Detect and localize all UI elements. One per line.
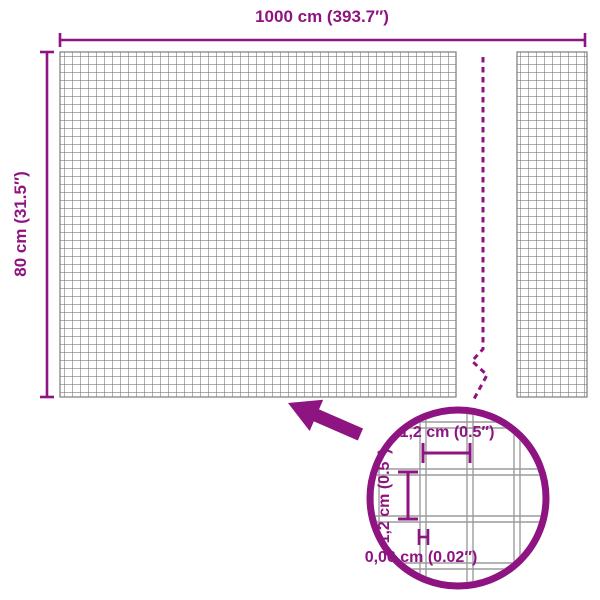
cell-width-label: 1,2 cm (0.5″) bbox=[400, 424, 495, 441]
width-label: 1000 cm (393.7″) bbox=[255, 7, 389, 26]
cell-height-label: 1,2 cm (0.5″) bbox=[376, 449, 393, 544]
mesh-panel-left bbox=[60, 52, 456, 397]
mesh-panel-right bbox=[517, 52, 587, 397]
wire-thickness-label: 0,06 cm (0.02″) bbox=[365, 549, 478, 566]
height-label: 80 cm (31.5″) bbox=[11, 171, 30, 276]
mesh-grid bbox=[60, 52, 456, 397]
mesh-product-diagram: 1000 cm (393.7″) 80 cm (31.5″) bbox=[0, 0, 600, 600]
mesh-grid bbox=[517, 52, 587, 397]
